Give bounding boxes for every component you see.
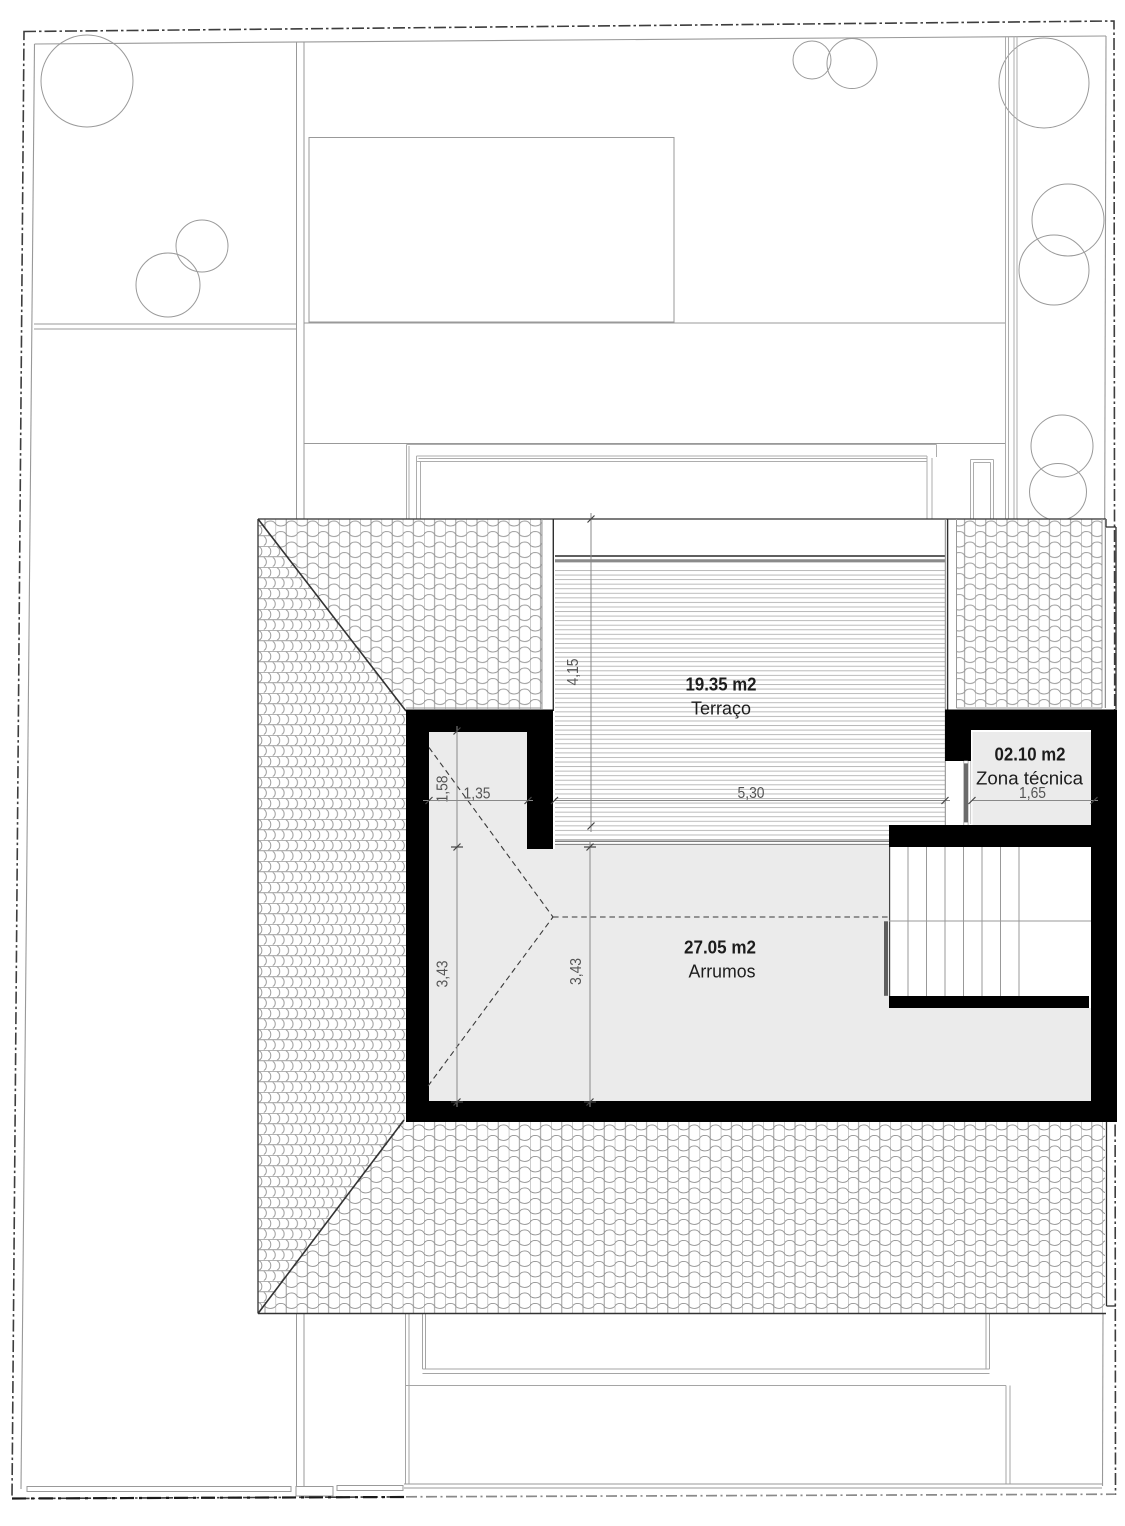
svg-text:Terraço: Terraço [691, 698, 751, 719]
svg-text:Zona técnica: Zona técnica [976, 768, 1084, 789]
svg-text:1,35: 1,35 [464, 786, 491, 803]
svg-text:19.35 m2: 19.35 m2 [686, 675, 757, 695]
svg-text:Arrumos: Arrumos [689, 961, 756, 982]
svg-text:1,58: 1,58 [435, 776, 452, 803]
svg-text:5,30: 5,30 [738, 785, 765, 802]
svg-text:3,43: 3,43 [435, 961, 452, 988]
svg-text:4,15: 4,15 [565, 659, 582, 686]
svg-text:3,43: 3,43 [568, 958, 585, 985]
svg-text:27.05 m2: 27.05 m2 [684, 938, 756, 958]
svg-text:02.10 m2: 02.10 m2 [995, 745, 1066, 765]
